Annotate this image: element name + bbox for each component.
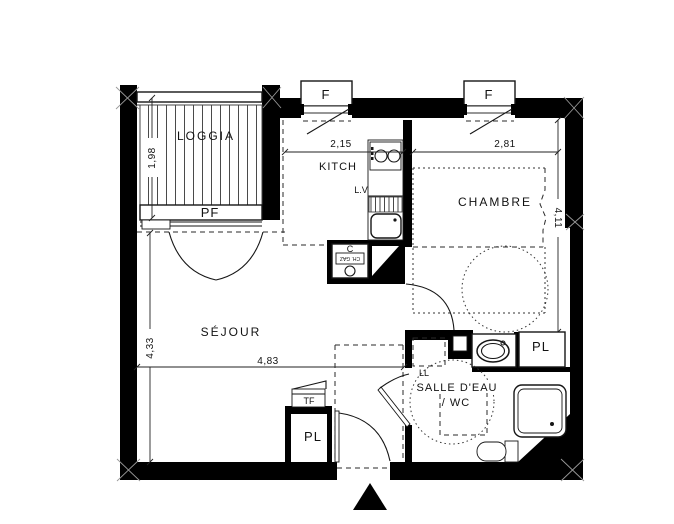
window-1: F	[299, 81, 353, 134]
shower-tray-inner	[518, 389, 562, 433]
bathroom-closet-label: PL	[532, 339, 550, 354]
dishwasher-label: L.V	[354, 185, 368, 195]
cooktop-knob	[371, 147, 374, 150]
kitchen-sink	[371, 214, 401, 238]
living-label: SÉJOUR	[201, 324, 262, 339]
entry-closet-label: PL	[304, 429, 322, 444]
top-wall-segment-a	[280, 98, 301, 118]
entry-area: TF PL	[292, 345, 403, 510]
bathroom-left-wall-upper	[405, 330, 412, 368]
window-1-jamb-left	[299, 104, 304, 115]
top-wall-segment-b	[352, 98, 464, 118]
bottom-wall-right	[390, 462, 583, 480]
bathroom-label-1: SALLE D'EAU	[417, 382, 498, 394]
bedroom-door-swing	[406, 284, 454, 330]
entrance-arrow	[353, 483, 387, 510]
entry-closet-right-wall	[327, 406, 332, 462]
loggia-railing	[137, 92, 262, 102]
window-2-jamb-left	[462, 104, 467, 115]
duct-white-box	[453, 336, 467, 351]
left-wall	[120, 85, 137, 480]
boiler-label: C	[347, 244, 354, 254]
window-2-frame	[466, 106, 513, 113]
bathroom-door-swing	[380, 374, 409, 388]
electrical-panel-label: TF	[304, 396, 315, 406]
french-window-label: PF	[201, 205, 220, 220]
dim-bedroom-width: 2,81	[494, 139, 515, 150]
floor-plan-drawing: LOGGIA PF 1,98 F F	[0, 0, 674, 524]
dim-living-depth: 4,33	[145, 337, 156, 358]
french-door-swing-left	[169, 232, 216, 280]
dim-kitchen-width: 2,15	[330, 139, 351, 150]
dim-living-width: 4,83	[257, 356, 278, 367]
cooktop-knob	[371, 157, 374, 160]
window-1-frame	[303, 106, 350, 113]
dim-bedroom-depth: 4,11	[552, 208, 563, 229]
bedroom-area: CHAMBRE 2,81 4,11	[406, 117, 565, 335]
sink-drain	[393, 218, 396, 221]
wardrobe-dashed-line	[540, 168, 546, 247]
boiler-type-label: CH. GAZ	[340, 255, 360, 261]
entry-door-leaf	[335, 411, 339, 462]
bathroom-left-wall-lower	[405, 425, 412, 462]
washing-machine-label: LL	[419, 368, 429, 378]
entry-door-swing	[339, 413, 390, 461]
bottom-wall-left	[120, 462, 337, 480]
bathroom-door-leaf	[378, 387, 410, 427]
bathroom-label-2: / WC	[442, 397, 470, 409]
loggia-label: LOGGIA	[177, 129, 235, 143]
electrical-panel-flap	[293, 381, 326, 389]
kitchen-bedroom-wall	[403, 120, 412, 247]
entry-closet-left-wall	[285, 406, 291, 462]
kitchen-area: KITCH L.V 2,15 C CH. GAZ	[282, 120, 406, 278]
french-door-swing-right	[216, 232, 263, 280]
right-wall-lower	[570, 228, 583, 480]
loggia-hatch-floor	[140, 105, 262, 205]
window-2-label: F	[485, 87, 494, 102]
bedroom-turning-circle	[462, 246, 548, 332]
window-1-label: F	[322, 87, 331, 102]
dim-loggia-width: 1,98	[147, 147, 158, 168]
drainboard	[369, 197, 402, 212]
toilet-bowl	[477, 442, 506, 461]
right-wall-upper	[565, 98, 583, 228]
toilet-tank	[505, 441, 518, 462]
kitchen-label: KITCH	[319, 161, 357, 173]
window-sill-box	[142, 220, 170, 229]
floor-plan-page: LOGGIA PF 1,98 F F	[0, 0, 674, 524]
loggia-right-wall	[262, 85, 280, 220]
bedroom-label: CHAMBRE	[458, 195, 532, 209]
bathroom-mid-wall	[472, 367, 583, 372]
window-2: F	[462, 81, 516, 134]
shower-drain	[550, 422, 554, 426]
